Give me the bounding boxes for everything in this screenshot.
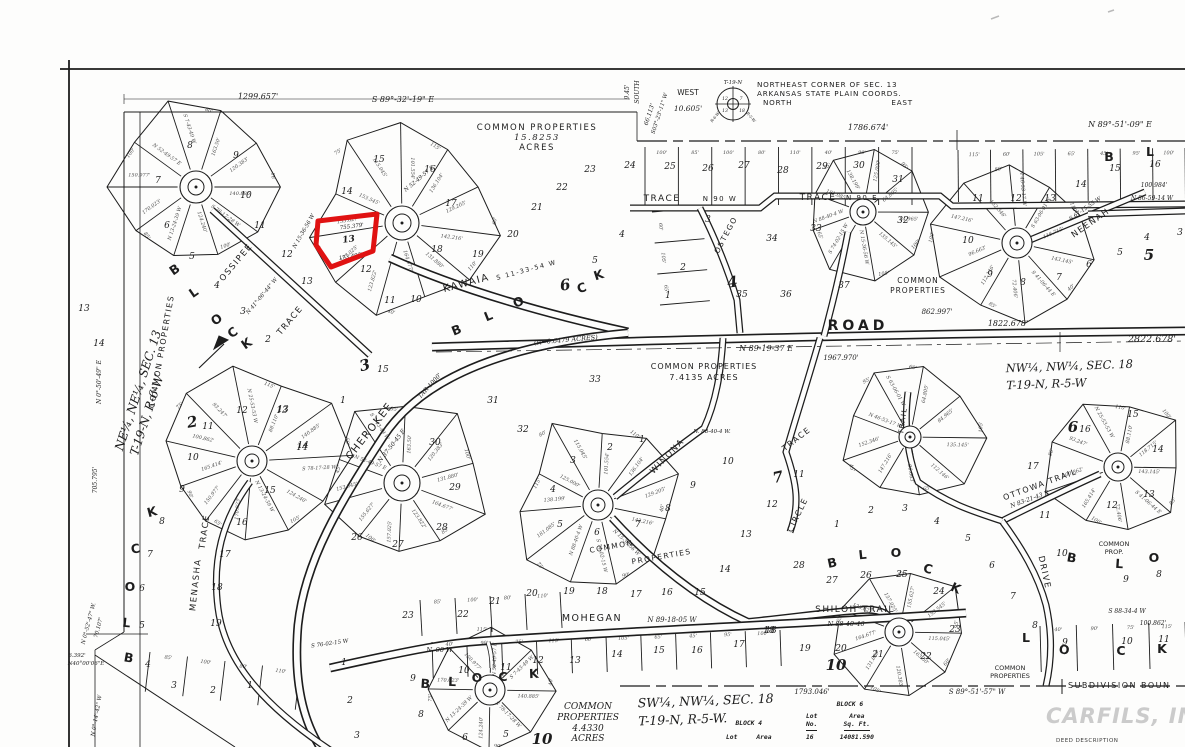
tbl4-col-lot: Lot <box>726 734 737 741</box>
svg-text:O: O <box>125 579 136 594</box>
svg-text:29: 29 <box>815 162 828 172</box>
svg-text:S 11-33-54 W: S 11-33-54 W <box>495 258 557 282</box>
svg-text:110': 110' <box>1115 404 1127 412</box>
svg-text:10: 10 <box>722 457 734 467</box>
lot-area-table-block6: BLOCK 6 Lot No. Area Sq. Ft. 16 14081.59… <box>806 701 880 742</box>
svg-text:65': 65' <box>923 485 932 492</box>
svg-text:9: 9 <box>690 481 696 491</box>
svg-text:115.045': 115.045' <box>928 636 950 642</box>
svg-text:33: 33 <box>589 375 601 385</box>
svg-text:93.247': 93.247' <box>211 402 228 420</box>
svg-text:11: 11 <box>972 194 983 204</box>
svg-text:7: 7 <box>635 520 641 530</box>
svg-text:S 89°-32'-19" E: S 89°-32'-19" E <box>372 95 434 104</box>
svg-text:80': 80' <box>239 664 247 671</box>
svg-text:C: C <box>922 560 935 577</box>
cp-mid-acreage: 7.4135 ACRES <box>634 373 774 384</box>
svg-text:124.240': 124.240' <box>285 489 307 505</box>
tbl6-col-lot2: No. <box>806 721 817 730</box>
svg-text:B: B <box>1104 149 1114 164</box>
svg-text:23: 23 <box>583 165 596 175</box>
svg-text:110': 110' <box>790 150 801 156</box>
svg-text:123.822': 123.822' <box>410 508 427 530</box>
svg-text:N 89-19-37 E: N 89-19-37 E <box>738 344 793 353</box>
svg-text:10: 10 <box>410 295 422 305</box>
svg-text:6: 6 <box>139 584 145 594</box>
svg-text:C: C <box>575 279 588 296</box>
svg-text:143.145': 143.145' <box>1051 255 1074 266</box>
svg-text:L: L <box>1022 630 1030 645</box>
svg-text:21: 21 <box>871 650 883 660</box>
svg-text:K: K <box>238 334 256 353</box>
svg-text:14: 14 <box>297 441 309 451</box>
svg-text:10: 10 <box>187 453 199 463</box>
svg-text:170.023': 170.023' <box>234 497 242 519</box>
svg-text:N. 88-40-4 W.: N. 88-40-4 W. <box>692 429 731 435</box>
svg-text:B: B <box>826 554 838 571</box>
svg-text:6: 6 <box>462 733 468 743</box>
svg-text:115': 115' <box>263 381 275 391</box>
svg-text:136.104': 136.104' <box>429 172 446 194</box>
svg-text:80': 80' <box>994 166 1002 173</box>
svg-text:6: 6 <box>1068 418 1079 436</box>
svg-text:15: 15 <box>694 588 706 598</box>
svg-text:20: 20 <box>525 589 538 599</box>
svg-text:165.414': 165.414' <box>201 460 224 473</box>
svg-text:TRACE: TRACE <box>197 514 212 551</box>
svg-text:N 89°-51'-09" E: N 89°-51'-09" E <box>1087 120 1152 129</box>
svg-text:95': 95' <box>724 632 732 638</box>
svg-text:6: 6 <box>989 561 995 571</box>
svg-text:13: 13 <box>1143 490 1155 500</box>
svg-text:5: 5 <box>965 534 971 544</box>
svg-text:6: 6 <box>558 275 572 295</box>
svg-text:40': 40' <box>1066 283 1077 293</box>
svg-text:MOHEGAN: MOHEGAN <box>562 613 622 624</box>
svg-text:85': 85' <box>434 599 442 605</box>
svg-text:1822.678': 1822.678' <box>988 319 1028 328</box>
svg-text:90': 90' <box>494 744 502 747</box>
svg-text:4: 4 <box>213 281 220 291</box>
svg-text:L: L <box>448 674 457 689</box>
svg-text:5: 5 <box>189 252 195 262</box>
svg-text:9: 9 <box>1123 575 1129 585</box>
svg-text:3: 3 <box>705 215 711 225</box>
svg-text:90': 90' <box>186 490 194 499</box>
svg-text:7: 7 <box>740 96 743 102</box>
svg-text:10: 10 <box>240 191 252 201</box>
svg-text:24: 24 <box>932 587 945 597</box>
svg-text:19: 19 <box>799 644 811 654</box>
common-properties-main: COMMON PROPERTIES 15.8253 ACRES <box>462 123 612 154</box>
svg-text:17: 17 <box>630 590 642 600</box>
svg-text:8: 8 <box>187 141 193 151</box>
svg-text:27: 27 <box>825 576 838 586</box>
svg-text:N 88-40-4 W: N 88-40-4 W <box>568 523 585 557</box>
svg-text:N 25-53-53 W: N 25-53-53 W <box>1092 405 1115 440</box>
svg-text:8: 8 <box>1032 621 1038 631</box>
svg-text:40': 40' <box>548 678 554 687</box>
svg-text:3: 3 <box>171 681 177 691</box>
svg-text:5: 5 <box>1144 246 1154 264</box>
svg-text:115': 115' <box>548 638 559 644</box>
svg-text:O: O <box>1149 550 1160 565</box>
svg-text:28: 28 <box>435 523 448 533</box>
svg-text:12: 12 <box>236 406 248 416</box>
cp-south-line1: COMMON <box>538 702 638 713</box>
svg-text:5: 5 <box>592 256 598 266</box>
svg-text:12: 12 <box>532 656 544 666</box>
svg-text:S 88-34-4 W: S 88-34-4 W <box>1108 608 1146 615</box>
svg-text:150.977': 150.977' <box>128 173 150 179</box>
svg-text:32: 32 <box>897 216 909 226</box>
svg-text:11: 11 <box>1039 511 1050 521</box>
svg-text:5: 5 <box>503 730 509 740</box>
svg-text:155.627': 155.627' <box>358 502 376 523</box>
corner-note-north: NORTH <box>763 98 792 107</box>
svg-text:13: 13 <box>740 530 752 540</box>
svg-text:N 0°-14'-42" W: N 0°-14'-42" W <box>90 693 104 738</box>
svg-text:1786.674': 1786.674' <box>848 123 888 132</box>
svg-text:N 0°-52'-47" W.: N 0°-52'-47" W. <box>80 602 97 646</box>
cp-b4-line2: PROPERTIES <box>876 286 960 296</box>
svg-text:L: L <box>858 547 868 563</box>
svg-text:10: 10 <box>826 656 847 674</box>
svg-text:21: 21 <box>488 597 500 607</box>
svg-text:135.145': 135.145' <box>877 231 898 250</box>
svg-text:C: C <box>224 324 240 342</box>
road-drive <box>1002 521 1051 686</box>
svg-text:L: L <box>1146 144 1154 159</box>
plat-map-sheet: T-19-N1271318R-6-WR-5-W140.885'95'S 78-1… <box>0 0 1185 747</box>
svg-text:18: 18 <box>596 587 608 597</box>
svg-text:TRACE: TRACE <box>799 193 837 203</box>
svg-text:72.406': 72.406' <box>1010 279 1018 298</box>
svg-text:6: 6 <box>1086 260 1092 270</box>
svg-text:N 52-49-57 E: N 52-49-57 E <box>492 642 499 677</box>
svg-text:115': 115' <box>429 141 441 152</box>
svg-text:17: 17 <box>445 199 457 209</box>
svg-text:S 78-17-28 W: S 78-17-28 W <box>494 700 523 729</box>
svg-text:N 41°-06'-44" W: N 41°-06'-44" W <box>245 276 280 316</box>
svg-text:16: 16 <box>1079 425 1091 435</box>
svg-text:2822.678': 2822.678' <box>1127 334 1176 345</box>
svg-text:31: 31 <box>487 396 498 406</box>
svg-text:131.880': 131.880' <box>437 472 460 484</box>
svg-text:20: 20 <box>506 230 519 240</box>
svg-text:135.145': 135.145' <box>947 442 969 448</box>
svg-text:25: 25 <box>663 162 676 172</box>
svg-text:16: 16 <box>424 165 436 175</box>
svg-text:143.145': 143.145' <box>1138 469 1160 475</box>
svg-text:13: 13 <box>78 304 90 314</box>
cp-south-line2: PROPERTIES <box>538 713 638 724</box>
svg-text:60': 60' <box>657 223 664 231</box>
svg-text:6: 6 <box>164 221 170 231</box>
svg-text:28: 28 <box>792 561 805 571</box>
svg-text:100': 100' <box>1090 515 1102 526</box>
svg-text:45': 45' <box>847 463 856 473</box>
tbl4-title: BLOCK 4 <box>726 720 772 728</box>
svg-text:3: 3 <box>357 355 372 375</box>
common-properties-south: COMMON PROPERTIES 4.4330 ACRES <box>538 702 638 745</box>
svg-text:N 90 W: N 90 W <box>703 195 738 203</box>
svg-text:17: 17 <box>1027 462 1039 472</box>
cp-b4-line1: COMMON <box>876 276 960 286</box>
svg-text:N 88-40-46: N 88-40-46 <box>827 620 865 628</box>
svg-text:110': 110' <box>467 260 479 272</box>
svg-text:115': 115' <box>532 477 542 489</box>
svg-text:140.885': 140.885' <box>300 423 321 441</box>
tbl6-row-area: 14081.590 <box>834 734 880 742</box>
svg-text:105': 105' <box>660 252 667 263</box>
svg-text:30: 30 <box>429 438 441 448</box>
svg-text:115': 115' <box>477 627 488 633</box>
svg-text:100': 100' <box>928 231 936 243</box>
subdivision-boundary-label: SUBDIVISION BOUN <box>1068 681 1171 690</box>
svg-text:2: 2 <box>209 686 216 696</box>
svg-text:13: 13 <box>301 277 313 287</box>
svg-text:95': 95' <box>862 377 872 386</box>
svg-text:29: 29 <box>448 483 461 493</box>
svg-text:152.346': 152.346' <box>858 436 881 449</box>
svg-text:110': 110' <box>537 593 548 600</box>
svg-text:4: 4 <box>549 485 556 495</box>
svg-text:19: 19 <box>210 619 222 629</box>
deed-description-note: DEED DESCRIPTION <box>1056 738 1118 744</box>
svg-text:19: 19 <box>472 250 484 260</box>
svg-text:27: 27 <box>391 540 404 550</box>
svg-text:1299.657': 1299.657' <box>238 92 278 101</box>
svg-text:60': 60' <box>1003 152 1011 158</box>
svg-text:2: 2 <box>679 263 686 273</box>
svg-text:B: B <box>123 649 135 665</box>
svg-text:147.216': 147.216' <box>950 214 973 225</box>
common-properties-mid: COMMON PROPERTIES 7.4135 ACRES <box>634 362 774 384</box>
svg-text:N 88-40-4 W: N 88-40-4 W <box>811 208 845 225</box>
svg-text:13: 13 <box>722 108 728 114</box>
svg-text:80': 80' <box>204 107 213 115</box>
svg-text:12: 12 <box>722 96 728 102</box>
svg-text:65': 65' <box>213 518 223 527</box>
svg-text:75': 75' <box>891 150 899 156</box>
svg-text:88.110': 88.110' <box>1125 424 1134 444</box>
svg-text:C: C <box>1116 643 1125 658</box>
svg-text:75': 75' <box>535 561 544 571</box>
svg-text:17: 17 <box>733 640 745 650</box>
svg-text:11: 11 <box>202 422 213 432</box>
svg-text:1: 1 <box>247 681 253 691</box>
svg-text:80': 80' <box>504 595 512 601</box>
svg-text:105': 105' <box>869 684 881 695</box>
svg-text:5: 5 <box>557 520 563 530</box>
svg-text:35: 35 <box>736 290 748 300</box>
svg-text:12: 12 <box>1010 194 1022 204</box>
tbl6-row-lot: 16 <box>806 734 830 742</box>
svg-text:22: 22 <box>919 652 932 662</box>
svg-text:14: 14 <box>611 650 623 660</box>
svg-text:TRACE: TRACE <box>275 304 306 338</box>
svg-text:N 52-49-57 E: N 52-49-57 E <box>150 142 182 167</box>
svg-text:2: 2 <box>867 506 874 516</box>
svg-text:S 78-17-28 W: S 78-17-28 W <box>302 464 337 472</box>
cp-rs-line1: COMMON <box>1086 540 1142 548</box>
svg-text:100': 100' <box>200 659 212 666</box>
cp-br-line2: PROPERTIES <box>978 673 1042 681</box>
svg-text:37: 37 <box>838 281 850 291</box>
svg-text:14: 14 <box>1152 445 1164 455</box>
svg-text:142.216': 142.216' <box>440 233 463 242</box>
svg-text:S 76-02-15 W: S 76-02-15 W <box>311 638 350 649</box>
svg-text:28: 28 <box>776 166 789 176</box>
svg-text:115': 115' <box>969 152 980 158</box>
svg-text:1: 1 <box>665 291 671 301</box>
svg-text:L: L <box>1115 556 1124 572</box>
svg-text:7: 7 <box>771 467 786 487</box>
svg-text:12: 12 <box>766 500 778 510</box>
svg-text:12: 12 <box>281 250 293 260</box>
svg-text:16: 16 <box>236 518 248 528</box>
svg-text:2: 2 <box>606 443 613 453</box>
svg-text:100': 100' <box>910 238 922 250</box>
svg-text:705.795': 705.795' <box>92 466 99 493</box>
svg-text:K: K <box>529 666 541 681</box>
svg-text:9.45': 9.45' <box>624 84 631 99</box>
svg-text:14: 14 <box>1075 180 1087 190</box>
svg-text:4: 4 <box>618 230 625 240</box>
svg-text:14: 14 <box>93 339 105 349</box>
svg-text:9: 9 <box>233 151 239 161</box>
svg-text:9: 9 <box>987 270 993 280</box>
svg-text:B: B <box>449 321 463 338</box>
svg-text:105': 105' <box>618 636 629 642</box>
svg-text:90': 90' <box>1091 626 1099 632</box>
svg-text:6: 6 <box>594 528 600 538</box>
svg-text:O: O <box>1058 642 1070 658</box>
svg-text:105': 105' <box>1034 151 1045 157</box>
svg-text:18: 18 <box>211 583 223 593</box>
svg-text:75': 75' <box>333 148 343 157</box>
svg-text:1: 1 <box>341 658 347 668</box>
svg-text:15: 15 <box>653 646 665 656</box>
svg-text:5: 5 <box>139 621 145 631</box>
svg-text:K: K <box>145 503 160 520</box>
svg-text:101.554': 101.554' <box>603 452 610 474</box>
svg-text:70.107': 70.107' <box>93 617 104 639</box>
svg-text:32: 32 <box>517 425 529 435</box>
svg-text:64.805': 64.805' <box>921 384 930 404</box>
svg-text:3: 3 <box>354 731 360 741</box>
svg-text:100.984': 100.984' <box>1141 182 1168 189</box>
svg-text:13: 13 <box>342 234 356 246</box>
svg-text:80': 80' <box>758 150 766 156</box>
svg-text:4: 4 <box>1143 233 1150 243</box>
svg-text:24: 24 <box>623 161 636 171</box>
svg-text:K: K <box>948 579 964 597</box>
svg-text:4: 4 <box>144 660 151 670</box>
svg-text:11: 11 <box>384 296 395 306</box>
svg-text:2: 2 <box>184 412 198 432</box>
watermark-brand: CARFILS, INC <box>1046 704 1185 728</box>
common-properties-bottom-right: COMMON PROPERTIES <box>978 665 1042 681</box>
svg-text:75': 75' <box>175 401 185 411</box>
svg-text:6.392': 6.392' <box>68 653 85 659</box>
svg-text:140.885': 140.885' <box>517 693 539 699</box>
svg-text:9: 9 <box>179 485 185 495</box>
svg-text:84.965': 84.965' <box>937 408 955 425</box>
svg-text:27: 27 <box>737 161 750 171</box>
svg-text:80': 80' <box>538 430 548 439</box>
svg-text:S 89°-51'-57" W: S 89°-51'-57" W <box>949 688 1006 696</box>
svg-text:12: 12 <box>1106 501 1118 511</box>
cp-mid-line1: COMMON PROPERTIES <box>634 362 774 373</box>
svg-text:N 90 E: N 90 E <box>846 194 878 202</box>
svg-text:862.997': 862.997' <box>922 308 953 316</box>
svg-text:K: K <box>1157 641 1168 656</box>
svg-text:SOUTH: SOUTH <box>634 80 641 104</box>
svg-text:100': 100' <box>723 150 734 156</box>
svg-text:101.554': 101.554' <box>409 157 415 179</box>
svg-text:26: 26 <box>701 164 714 174</box>
svg-text:65': 65' <box>1068 151 1076 157</box>
svg-text:10: 10 <box>962 236 974 246</box>
svg-text:125.000': 125.000' <box>559 474 581 490</box>
svg-text:8: 8 <box>1156 570 1162 580</box>
svg-text:11: 11 <box>254 221 265 231</box>
cp-south-line4: ACRES <box>538 734 638 745</box>
svg-text:85': 85' <box>164 655 172 662</box>
corner-note-east: EAST <box>891 98 913 107</box>
svg-text:75': 75' <box>1127 625 1135 631</box>
svg-text:18: 18 <box>431 245 443 255</box>
svg-text:40': 40' <box>386 308 396 316</box>
svg-text:80': 80' <box>1047 448 1055 457</box>
svg-text:L: L <box>482 307 495 324</box>
section-label-nw: NW¼, NW¼, SEC. 18 T-19-N, R-5-W <box>1005 356 1133 394</box>
svg-text:25: 25 <box>895 570 908 580</box>
section-corner-symbol <box>715 86 751 122</box>
svg-text:N 86-59-14 W: N 86-59-14 W <box>1130 195 1174 202</box>
svg-text:100': 100' <box>1163 150 1174 156</box>
svg-text:100.862': 100.862' <box>1140 620 1167 627</box>
svg-text:124.240': 124.240' <box>195 211 208 234</box>
svg-text:15: 15 <box>373 155 385 165</box>
svg-text:95': 95' <box>271 171 277 179</box>
svg-text:22: 22 <box>456 610 469 620</box>
svg-text:129.205': 129.205' <box>644 486 667 500</box>
svg-text:45': 45' <box>688 633 697 639</box>
svg-text:85': 85' <box>1168 497 1178 507</box>
svg-text:60': 60' <box>492 217 499 225</box>
svg-text:B: B <box>1066 549 1078 565</box>
svg-text:13: 13 <box>569 656 581 666</box>
svg-text:22: 22 <box>555 183 568 193</box>
svg-text:ROAD: ROAD <box>828 318 889 334</box>
svg-text:33: 33 <box>810 224 822 234</box>
svg-text:93.247': 93.247' <box>1068 436 1088 448</box>
svg-text:14: 14 <box>719 565 731 575</box>
svg-text:O: O <box>472 670 483 685</box>
svg-text:26: 26 <box>350 533 363 543</box>
svg-text:100.862': 100.862' <box>192 433 215 444</box>
svg-text:60': 60' <box>585 637 593 643</box>
tbl6-col-area2: Sq. Ft. <box>844 721 871 730</box>
tbl6-title: BLOCK 6 <box>806 701 880 709</box>
svg-text:110': 110' <box>275 668 287 675</box>
svg-text:23: 23 <box>948 625 961 635</box>
svg-text:95': 95' <box>899 161 909 171</box>
svg-text:100': 100' <box>467 597 478 604</box>
